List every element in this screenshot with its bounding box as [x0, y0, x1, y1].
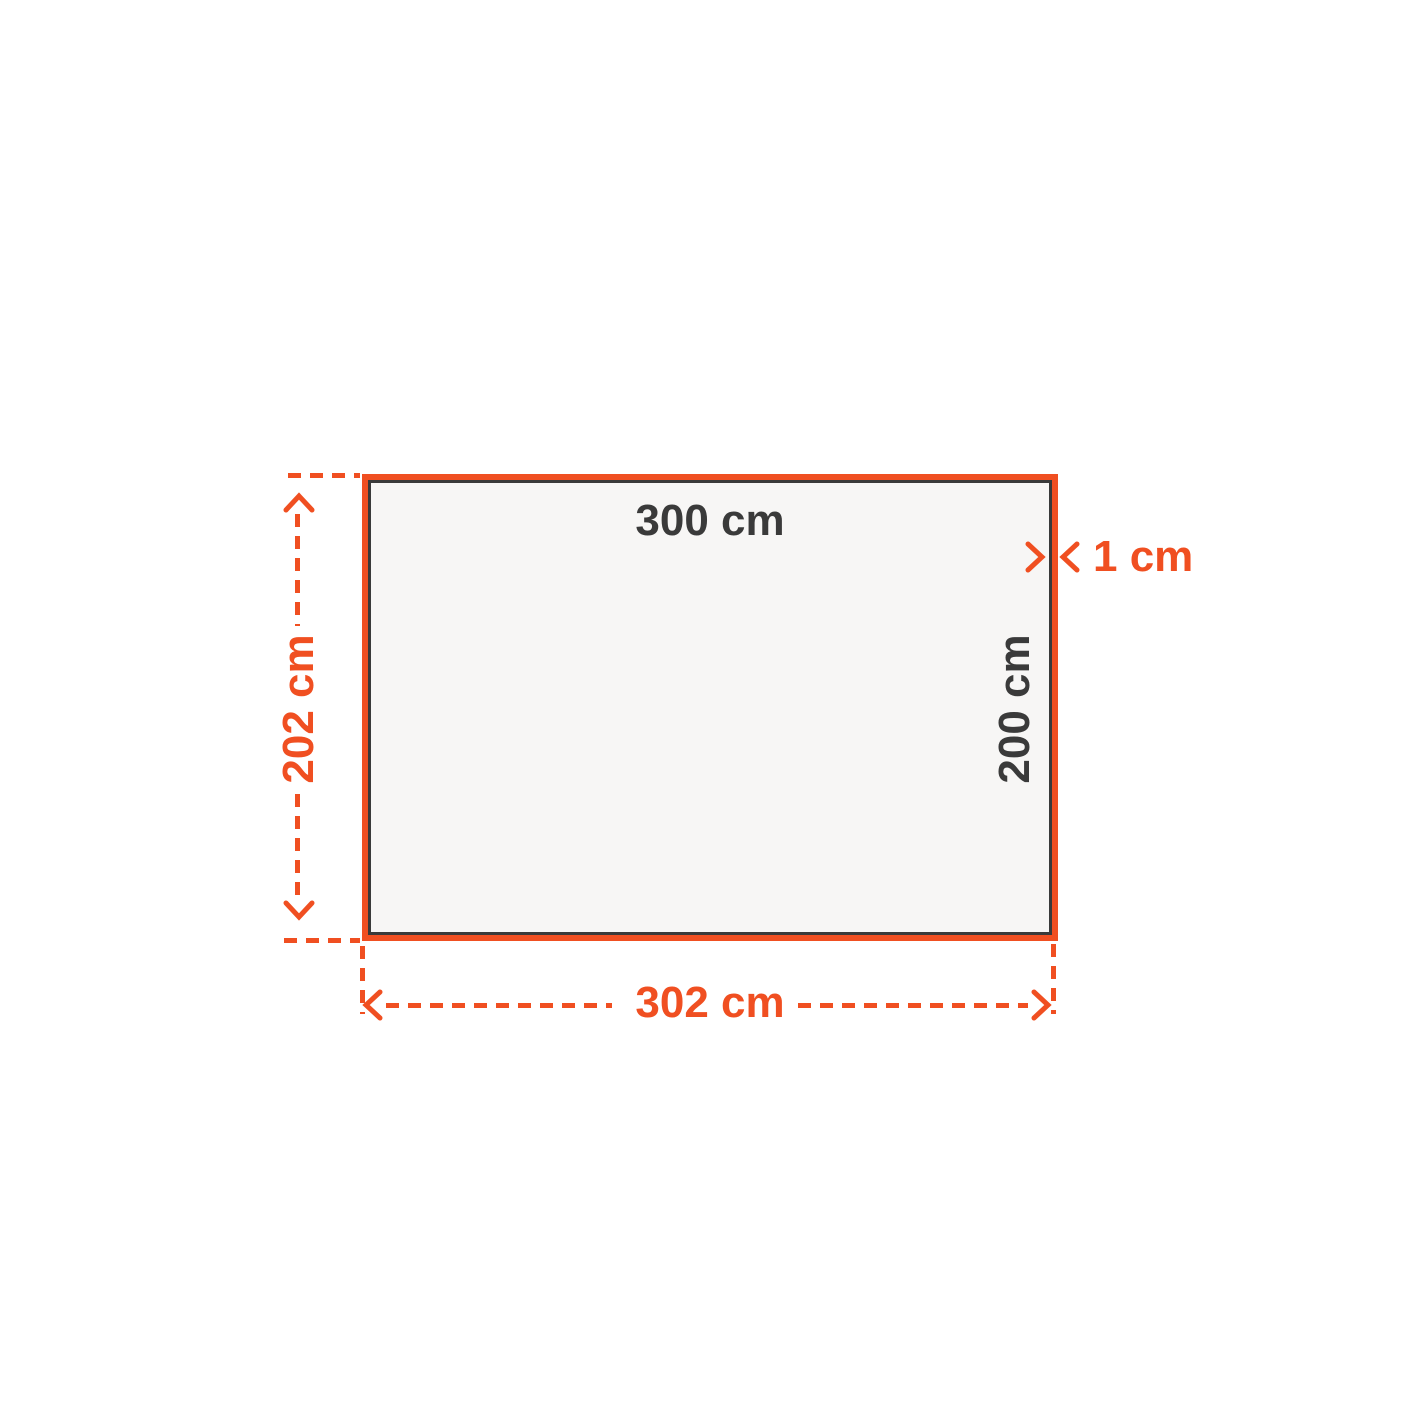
arrow-down-icon: [282, 899, 316, 923]
arrow-right-icon: [1030, 988, 1054, 1022]
outer-height-label: 202 cm: [277, 634, 321, 783]
inner-width-label: 300 cm: [362, 499, 1058, 543]
border-pointer-right-icon: [1024, 540, 1048, 574]
extension-line-bottom: [284, 938, 360, 943]
width-dim-line-right: [798, 1003, 1028, 1008]
border-pointer-left-icon: [1057, 540, 1081, 574]
arrow-up-icon: [282, 490, 316, 514]
inner-height-label: 200 cm: [993, 634, 1037, 783]
border-thickness-label: 1 cm: [1093, 535, 1193, 579]
height-dim-line-upper: [295, 514, 300, 626]
panel-inner-surface: [368, 480, 1052, 935]
diagram-canvas: 300 cm 200 cm 1 cm 202 cm 302 cm: [0, 0, 1417, 1417]
extension-line-top: [288, 473, 360, 478]
height-dim-line-lower: [295, 794, 300, 902]
